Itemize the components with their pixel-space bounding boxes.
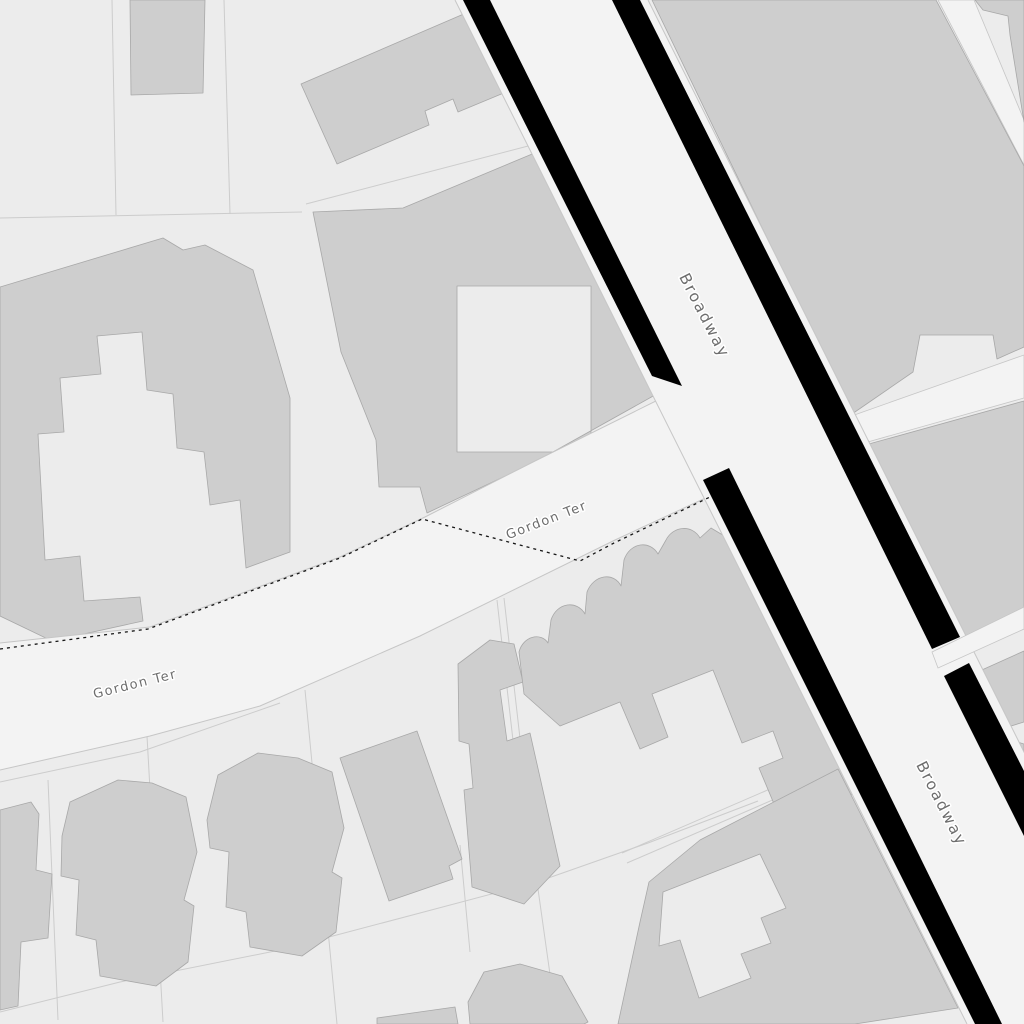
map-canvas[interactable]: Gordon TerGordon TerBroadwayBroadway: [0, 0, 1024, 1024]
map-svg: Gordon TerGordon TerBroadwayBroadway: [0, 0, 1024, 1024]
building-nw-small: [130, 0, 205, 95]
